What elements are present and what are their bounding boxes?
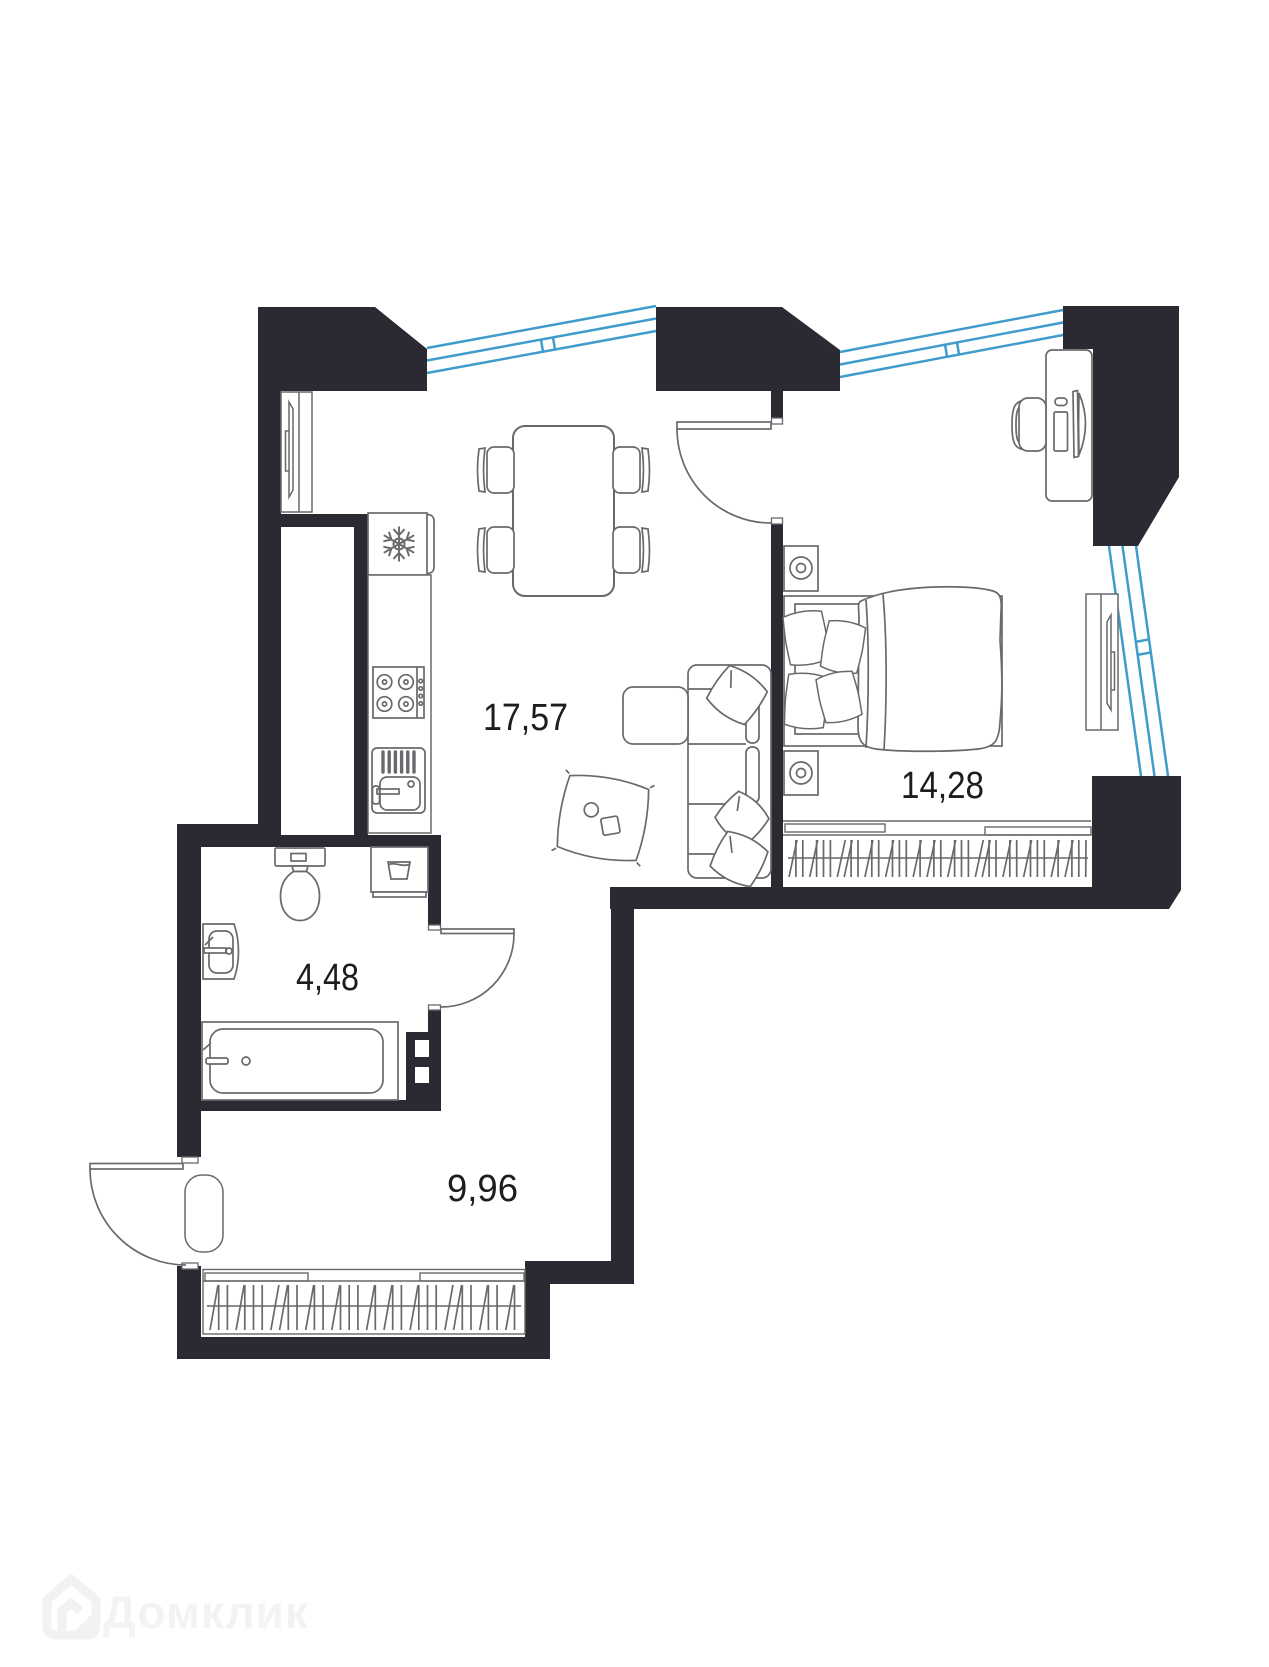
svg-text:9,96: 9,96: [447, 1168, 518, 1210]
svg-text:14,28: 14,28: [901, 765, 984, 807]
svg-text:4,48: 4,48: [296, 957, 359, 999]
svg-text:Домклик: Домклик: [103, 1586, 309, 1638]
svg-text:17,57: 17,57: [483, 697, 568, 739]
